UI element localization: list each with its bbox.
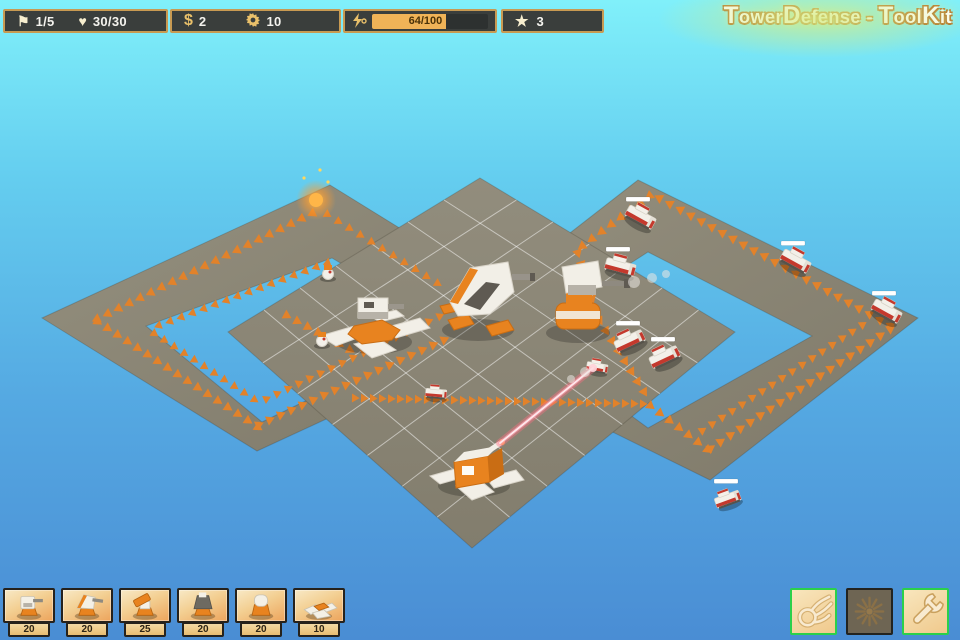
tower-cost-label: 20 [66,622,108,637]
enemy-health-bar [651,337,675,342]
airstrike-button [846,588,893,635]
energy-bar: 64/100 [372,14,488,29]
tower-tesla-thumbnail [177,588,229,623]
tower-cost-label: 25 [124,622,166,637]
game-viewport: ⚑ 1/5 ♥ 30/30 $ 2 10 64/100 ★ 3 TowerDef… [0,0,960,640]
star-icon: ★ [515,14,528,29]
enemy-health-bar [606,247,630,252]
energy-panel: 64/100 [343,9,497,33]
tower-cost-label: 20 [8,622,50,637]
tower-cost-label: 10 [298,622,340,637]
enemy-car [712,485,744,514]
enemy-health-bar [616,321,640,326]
energy-bar-fill: 64/100 [372,14,446,29]
game-logo: TowerDefense - ToolKit [724,2,952,30]
build-button-tower-tesla[interactable]: 20 [177,588,229,637]
money-counter: 2 [199,14,207,29]
build-button-tower-dome[interactable]: 20 [235,588,287,637]
settings-button[interactable] [902,588,949,635]
enemy-health-bar [714,479,738,484]
tower-rocket-thumbnail [119,588,171,623]
build-button-tower-cannon[interactable]: 20 [61,588,113,637]
build-button-tower-mine[interactable]: 10 [293,588,345,637]
fireball-icon [792,590,835,633]
fireball-button[interactable] [790,588,837,635]
gear-icon [246,13,260,29]
dollar-icon: $ [184,13,193,29]
stars-counter: 3 [536,14,544,29]
heart-icon: ♥ [79,14,87,28]
wave-counter: 1/5 [36,14,55,29]
tower-cost-label: 20 [182,622,224,637]
tower-cannon-thumbnail [61,588,113,623]
resources-panel: $ 2 10 [170,9,341,33]
enemy-health-bar [626,197,650,202]
game-map[interactable] [0,0,960,640]
tower-cost-label: 20 [240,622,282,637]
enemy-health-bar [781,241,805,246]
build-button-tower-gun[interactable]: 20 [3,588,55,637]
spawn-portal [296,168,336,220]
parts-counter: 10 [266,14,281,29]
tower-gun-thumbnail [3,588,55,623]
build-button-tower-rocket[interactable]: 25 [119,588,171,637]
stars-panel: ★ 3 [501,9,604,33]
lives-counter: 30/30 [93,14,127,29]
wave-lives-panel: ⚑ 1/5 ♥ 30/30 [3,9,168,33]
burst-icon [848,590,891,633]
tower-mine-thumbnail [293,588,345,623]
enemy-health-bar [872,291,896,296]
energy-icon [352,13,367,30]
wrench-icon [904,590,947,633]
tower-dome-thumbnail [235,588,287,623]
flag-icon: ⚑ [17,14,30,28]
